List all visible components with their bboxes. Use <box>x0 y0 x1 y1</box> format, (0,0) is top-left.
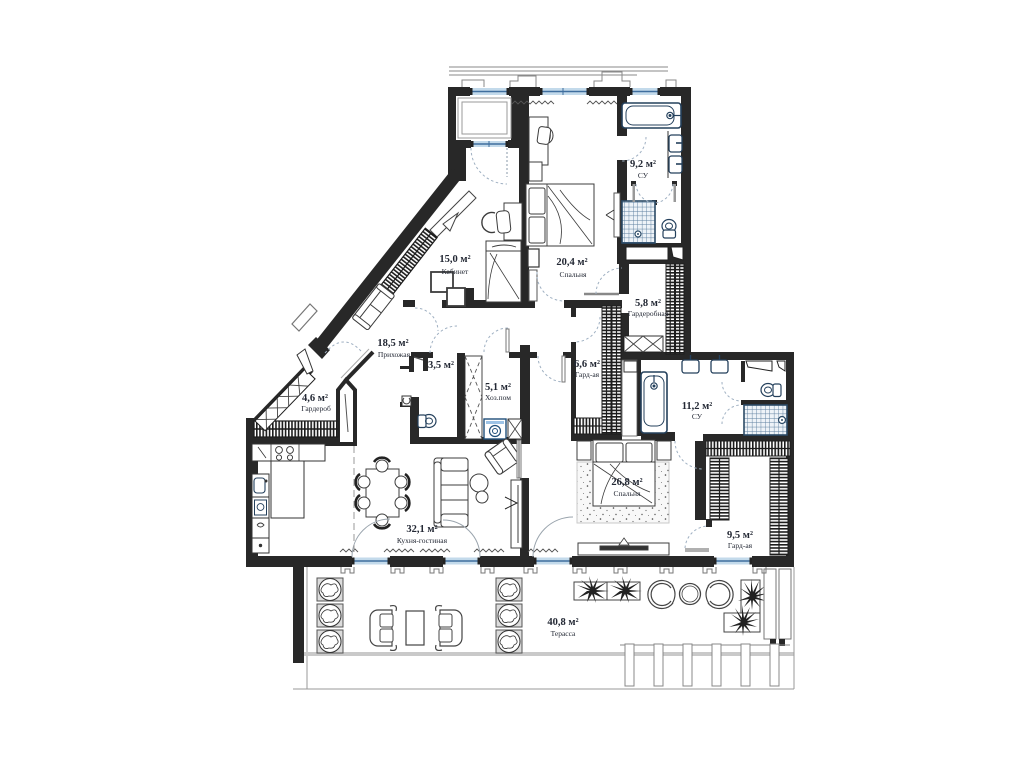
svg-text:Гардероб: Гардероб <box>301 404 331 413</box>
svg-text:Хоз.пом: Хоз.пом <box>485 393 511 402</box>
svg-text:5,1 м2: 5,1 м2 <box>485 382 511 393</box>
svg-text:Кухня-гостиная: Кухня-гостиная <box>397 536 448 545</box>
svg-text:4,6 м2: 4,6 м2 <box>302 393 328 404</box>
svg-text:40,8 м2: 40,8 м2 <box>547 617 578 628</box>
svg-text:26,8 м2: 26,8 м2 <box>611 477 642 488</box>
svg-text:СУ: СУ <box>638 171 649 180</box>
svg-text:11,2 м2: 11,2 м2 <box>682 401 713 412</box>
svg-text:3,5 м2: 3,5 м2 <box>428 360 454 371</box>
svg-text:9,5 м2: 9,5 м2 <box>727 530 753 541</box>
svg-text:Прихожая: Прихожая <box>378 350 411 359</box>
svg-text:Кабинет: Кабинет <box>442 267 469 276</box>
svg-text:15,0 м2: 15,0 м2 <box>439 254 470 265</box>
svg-text:Терасса: Терасса <box>551 629 576 638</box>
svg-text:Спальня: Спальня <box>613 489 641 498</box>
svg-text:32,1 м2: 32,1 м2 <box>406 524 437 535</box>
svg-text:9,2 м2: 9,2 м2 <box>630 159 656 170</box>
svg-text:6,6 м2: 6,6 м2 <box>574 359 600 370</box>
svg-text:5,8 м2: 5,8 м2 <box>635 298 661 309</box>
svg-text:СУ: СУ <box>692 412 703 421</box>
svg-text:20,4 м2: 20,4 м2 <box>556 257 587 268</box>
svg-text:Спальня: Спальня <box>559 270 587 279</box>
svg-text:Гардеробная: Гардеробная <box>628 309 669 318</box>
svg-text:Гард-ая: Гард-ая <box>728 541 753 550</box>
svg-text:Гард-ая: Гард-ая <box>575 370 600 379</box>
svg-text:18,5 м2: 18,5 м2 <box>377 338 408 349</box>
